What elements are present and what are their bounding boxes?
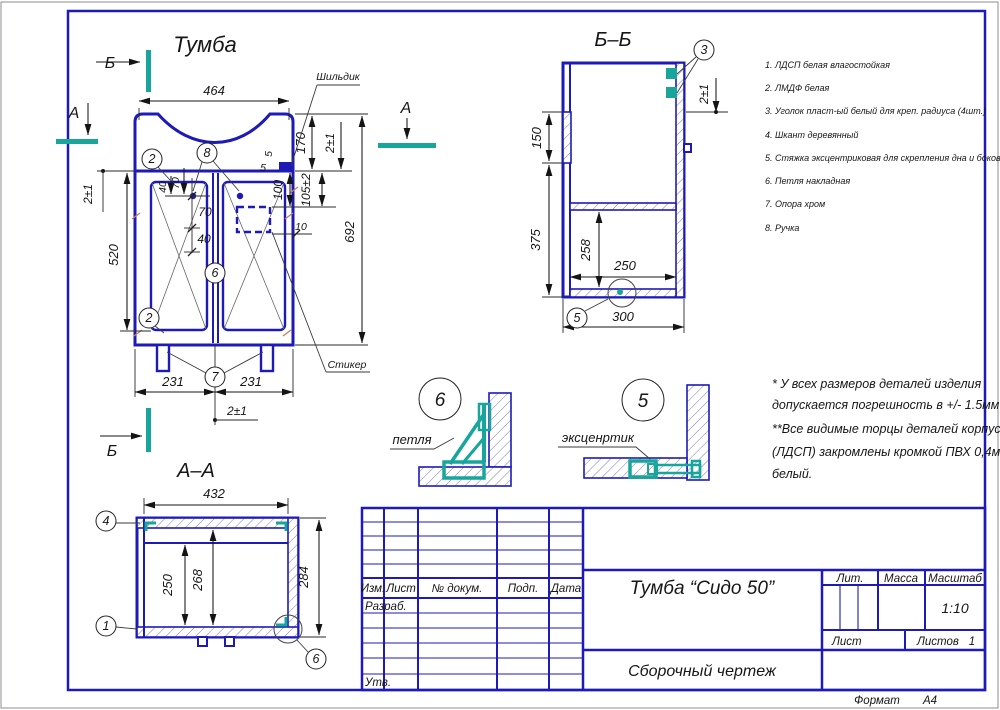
- mass-label: Масса: [884, 573, 918, 585]
- dim-10: 10: [295, 221, 307, 233]
- callout-7: 7: [212, 370, 220, 384]
- dim-375: 375: [528, 228, 543, 250]
- label-shildik: Шильдик: [316, 71, 361, 83]
- marker-a-label: А: [400, 100, 412, 117]
- aa-leg: [225, 637, 234, 646]
- dim-432: 432: [203, 486, 225, 501]
- bb-corner-bracket: [666, 68, 677, 79]
- assembly-drawing: Тумба Б Б А А: [0, 0, 1000, 710]
- dim-5a: 5: [263, 151, 275, 157]
- callout-8: 8: [204, 146, 211, 160]
- parts-list: 1. ЛДСП белая влагостойкая 2. ЛМДФ белая…: [764, 60, 1000, 233]
- bb-hinge-pocket: [563, 112, 571, 163]
- notes: * У всех размеров деталей изделия допуск…: [772, 377, 1000, 481]
- section-aa: А–А 432 284 250 268 4: [96, 460, 326, 669]
- marker-a-label: А: [68, 105, 80, 122]
- dim-width: 464: [139, 83, 289, 120]
- dim-250: 250: [613, 258, 636, 273]
- parts-item: 6. Петля накладная: [765, 176, 850, 186]
- bb-dowel: [684, 144, 691, 152]
- dim-2p1-left: 2±1: [81, 184, 95, 205]
- callout-4: 4: [103, 514, 110, 528]
- bb-bottom-panel: [570, 289, 676, 297]
- parts-item: 4. Шкант деревянный: [765, 130, 858, 140]
- sheet-label: Лист: [831, 636, 862, 648]
- hinge-label: петля: [392, 432, 431, 447]
- row-utv: Утв.: [364, 677, 391, 689]
- parts-item: 3. Уголок пласт-ый белый для креп. радиу…: [765, 106, 986, 116]
- callout-5: 5: [574, 311, 581, 325]
- bb-shelf: [570, 203, 676, 210]
- parts-item: 1. ЛДСП белая влагостойкая: [765, 60, 890, 70]
- front-view-title: Тумба: [173, 32, 236, 57]
- callout-2-top: 2: [148, 152, 156, 166]
- dim-250-aa: 250: [160, 573, 175, 596]
- dim-231a: 231: [161, 374, 184, 389]
- format-label: Формат: [854, 695, 900, 707]
- note-line: **Все видимые торцы деталей корпуса: [772, 422, 1000, 436]
- section-aa-title: А–А: [176, 460, 215, 482]
- doc-type: Сборочный чертеж: [628, 663, 777, 680]
- dim-258: 258: [578, 238, 593, 261]
- marker-b-bar: [146, 408, 151, 452]
- dim-268: 268: [190, 568, 205, 591]
- detail-6-number: 6: [435, 390, 446, 411]
- detail-5-number: 5: [638, 391, 649, 412]
- dim-464: 464: [203, 83, 225, 98]
- callout-6: 6: [212, 266, 219, 280]
- cam-label: эксценртик: [562, 430, 635, 445]
- title-block: Изм. Лист № докум. Подп. Дата Разраб. Ут…: [361, 508, 985, 707]
- aa-leg: [198, 637, 207, 646]
- sheets-value: 1: [969, 636, 975, 648]
- callout-6-aa: 6: [313, 652, 320, 666]
- dim-105: 105±2: [299, 173, 313, 207]
- note-line: белый.: [772, 467, 812, 481]
- parts-item: 5. Стяжка эксцентриковая для скрепления …: [765, 153, 1000, 163]
- right-leg: [261, 345, 273, 371]
- label-sticker: Стикер: [328, 359, 367, 371]
- col-sheet: Лист: [385, 583, 416, 595]
- lit-label: Лит.: [836, 573, 864, 585]
- marker-b-label: Б: [105, 55, 115, 72]
- bb-right-wall: [676, 63, 684, 297]
- note-line: допускается погрешность в +/- 1.5мм: [772, 398, 1000, 412]
- dim-300: 300: [612, 309, 634, 324]
- dim-692: 692: [342, 220, 357, 242]
- bb-corner-bracket: [666, 87, 677, 98]
- dim-70b: 70: [198, 205, 212, 219]
- section-marker-a-right: А: [378, 100, 436, 148]
- col-sign: Подп.: [508, 583, 539, 595]
- dim-520: 520: [106, 243, 121, 265]
- drawing-sheet: Тумба Б Б А А: [0, 0, 1000, 710]
- note-line: * У всех размеров деталей изделия: [772, 377, 981, 391]
- dim-100: 100: [271, 180, 285, 200]
- dim-284: 284: [296, 566, 311, 589]
- hinge-side-panel: [489, 393, 511, 467]
- dim-5b: 5: [260, 162, 266, 174]
- front-view: Тумба Б Б А А: [56, 32, 436, 460]
- detail-cam: 5 эксценртик: [558, 379, 709, 480]
- section-bb-title: Б–Б: [594, 29, 631, 51]
- format-value: А4: [922, 695, 937, 707]
- section-marker-a-left: А: [56, 103, 98, 144]
- parts-item: 2. ЛМДФ белая: [764, 83, 830, 93]
- parts-item: 7. Опора хром: [765, 199, 825, 209]
- dim-2p1-bb: 2±1: [697, 84, 711, 105]
- callout-1: 1: [103, 619, 110, 633]
- row-razrab: Разраб.: [365, 601, 407, 613]
- dim-170: 170: [293, 131, 308, 153]
- product-title: Тумба “Сидо 50”: [630, 578, 776, 599]
- dim-70: 70: [170, 177, 182, 189]
- parts-item: 8. Ручка: [765, 223, 799, 233]
- section-marker-b-top: Б: [96, 50, 151, 92]
- callout-3: 3: [701, 43, 708, 57]
- marker-a-bar: [56, 139, 98, 144]
- col-izm: Изм.: [361, 583, 386, 595]
- dim-40: 40: [157, 181, 169, 193]
- section-marker-b-bottom: Б: [100, 408, 151, 460]
- note-line: (ЛДСП) закромлены кромкой ПВХ 0,4мм: [772, 445, 1000, 459]
- marker-b-bar: [146, 50, 151, 92]
- aa-top-panel: [137, 518, 298, 528]
- detail-hinge: 6 петля: [390, 378, 511, 486]
- marker-b-label: Б: [107, 443, 117, 460]
- col-doc: № докум.: [432, 583, 483, 595]
- left-leg: [157, 345, 169, 371]
- right-handle: [237, 193, 243, 199]
- dim-231b: 231: [239, 374, 262, 389]
- scale-label: Масштаб: [928, 573, 982, 585]
- callout-2-bottom: 2: [145, 311, 153, 325]
- dim-150: 150: [529, 126, 544, 148]
- scale-value: 1:10: [941, 600, 968, 616]
- dim-2p1-right: 2±1: [323, 133, 337, 154]
- section-bb: Б–Б 3 2±1 150 375 258: [528, 29, 728, 333]
- marker-a-bar: [378, 143, 436, 148]
- bb-cam-dot: [617, 289, 623, 295]
- nameplate: [279, 162, 293, 171]
- sheets-label: Листов: [916, 636, 959, 648]
- dim-2p1-bottom: 2±1: [226, 404, 247, 418]
- dim-40b: 40: [197, 232, 211, 246]
- col-date: Дата: [549, 583, 581, 595]
